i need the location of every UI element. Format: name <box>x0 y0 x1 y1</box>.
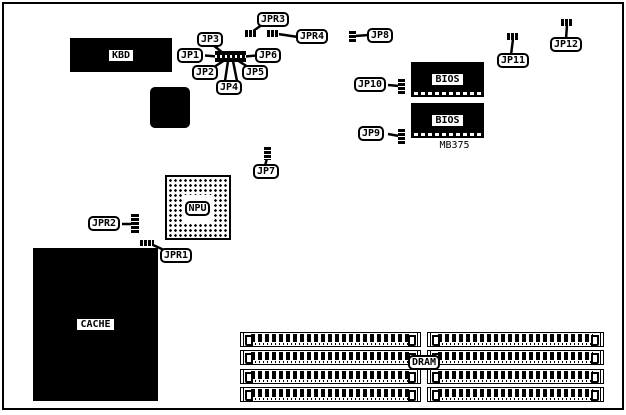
socket-clip <box>244 351 251 364</box>
socket-clip <box>431 333 438 346</box>
label-jp1: JP1 <box>177 48 203 63</box>
socket-clip <box>244 388 251 401</box>
jp8-jumper <box>349 31 356 43</box>
socket-end-tab <box>600 333 603 346</box>
socket-contact-row <box>251 334 410 345</box>
simm-socket <box>240 350 421 365</box>
label-jp12: JP12 <box>550 37 582 52</box>
label-jpr2: JPR2 <box>88 216 120 231</box>
jp12-jumper <box>561 19 573 26</box>
bios-chip-top: BIOS <box>411 62 484 97</box>
label-jp9: JP9 <box>358 126 384 141</box>
socket-clip <box>410 370 417 383</box>
bios-chip-bottom: BIOS <box>411 103 484 138</box>
socket-clip <box>431 388 438 401</box>
socket-clip <box>431 370 438 383</box>
cache-chip-label: CACHE <box>77 319 113 330</box>
socket-end-tab <box>417 333 420 346</box>
simm-socket <box>427 332 604 347</box>
socket-end-tab <box>600 370 603 383</box>
bios-top-label: BIOS <box>432 74 462 85</box>
simm-socket <box>240 332 421 347</box>
bios-bottom-label: BIOS <box>432 115 462 126</box>
kbd-chip-label: KBD <box>109 50 133 61</box>
jpr4-jumper <box>267 30 279 37</box>
socket-clip <box>244 333 251 346</box>
label-jpr1: JPR1 <box>160 248 192 263</box>
label-jp7: JP7 <box>253 164 279 179</box>
socket-contact-row <box>438 389 593 400</box>
label-jp6: JP6 <box>255 48 281 63</box>
jumper-block-jp1-jp6 <box>215 51 246 62</box>
label-jp10: JP10 <box>354 77 386 92</box>
socket-clip <box>593 388 600 401</box>
label-jp5: JP5 <box>242 65 268 80</box>
jp11-jumper <box>507 33 519 40</box>
kbd-chip: KBD <box>70 38 172 72</box>
label-jp2: JP2 <box>192 65 218 80</box>
cache-chip: CACHE <box>33 248 158 401</box>
socket-contact-row <box>251 389 410 400</box>
socket-end-tab <box>417 370 420 383</box>
socket-contact-row <box>438 334 593 345</box>
jp7-jumper <box>264 147 271 160</box>
socket-clip <box>410 388 417 401</box>
socket-contact-row <box>251 352 410 363</box>
jpr1-jumper <box>140 240 154 246</box>
unlabeled-chip <box>150 87 190 128</box>
socket-clip <box>244 370 251 383</box>
socket-clip <box>410 333 417 346</box>
jpr2-jumper <box>131 214 139 234</box>
label-jp8: JP8 <box>367 28 393 43</box>
motherboard-jumper-diagram: KBD NPU CACHE BIOS BIOS MB375 JPR3 JPR4 … <box>0 0 626 415</box>
socket-clip <box>593 351 600 364</box>
chipset-name: MB375 <box>418 140 491 151</box>
socket-end-tab <box>600 351 603 364</box>
jpr3-jumper <box>245 30 257 37</box>
socket-clip <box>593 333 600 346</box>
npu-label: NPU <box>185 201 209 216</box>
label-dram: DRAM <box>408 355 440 370</box>
socket-contact-row <box>438 371 593 382</box>
simm-socket <box>427 369 604 384</box>
label-jpr3: JPR3 <box>257 12 289 27</box>
simm-socket <box>427 387 604 402</box>
jp10-jumper <box>398 79 405 94</box>
socket-contact-row <box>438 352 593 363</box>
bios-pin-row <box>414 133 481 136</box>
npu-socket-center: NPU <box>183 195 212 222</box>
label-jp11: JP11 <box>497 53 529 68</box>
jp9-jumper <box>398 129 405 144</box>
socket-end-tab <box>417 388 420 401</box>
label-jp3: JP3 <box>197 32 223 47</box>
socket-end-tab <box>600 388 603 401</box>
label-jp4: JP4 <box>216 80 242 95</box>
socket-contact-row <box>251 371 410 382</box>
socket-clip <box>593 370 600 383</box>
npu-socket: NPU <box>165 175 231 240</box>
bios-pin-row <box>414 92 481 95</box>
simm-socket <box>427 350 604 365</box>
simm-socket <box>240 387 421 402</box>
simm-socket <box>240 369 421 384</box>
label-jpr4: JPR4 <box>296 29 328 44</box>
